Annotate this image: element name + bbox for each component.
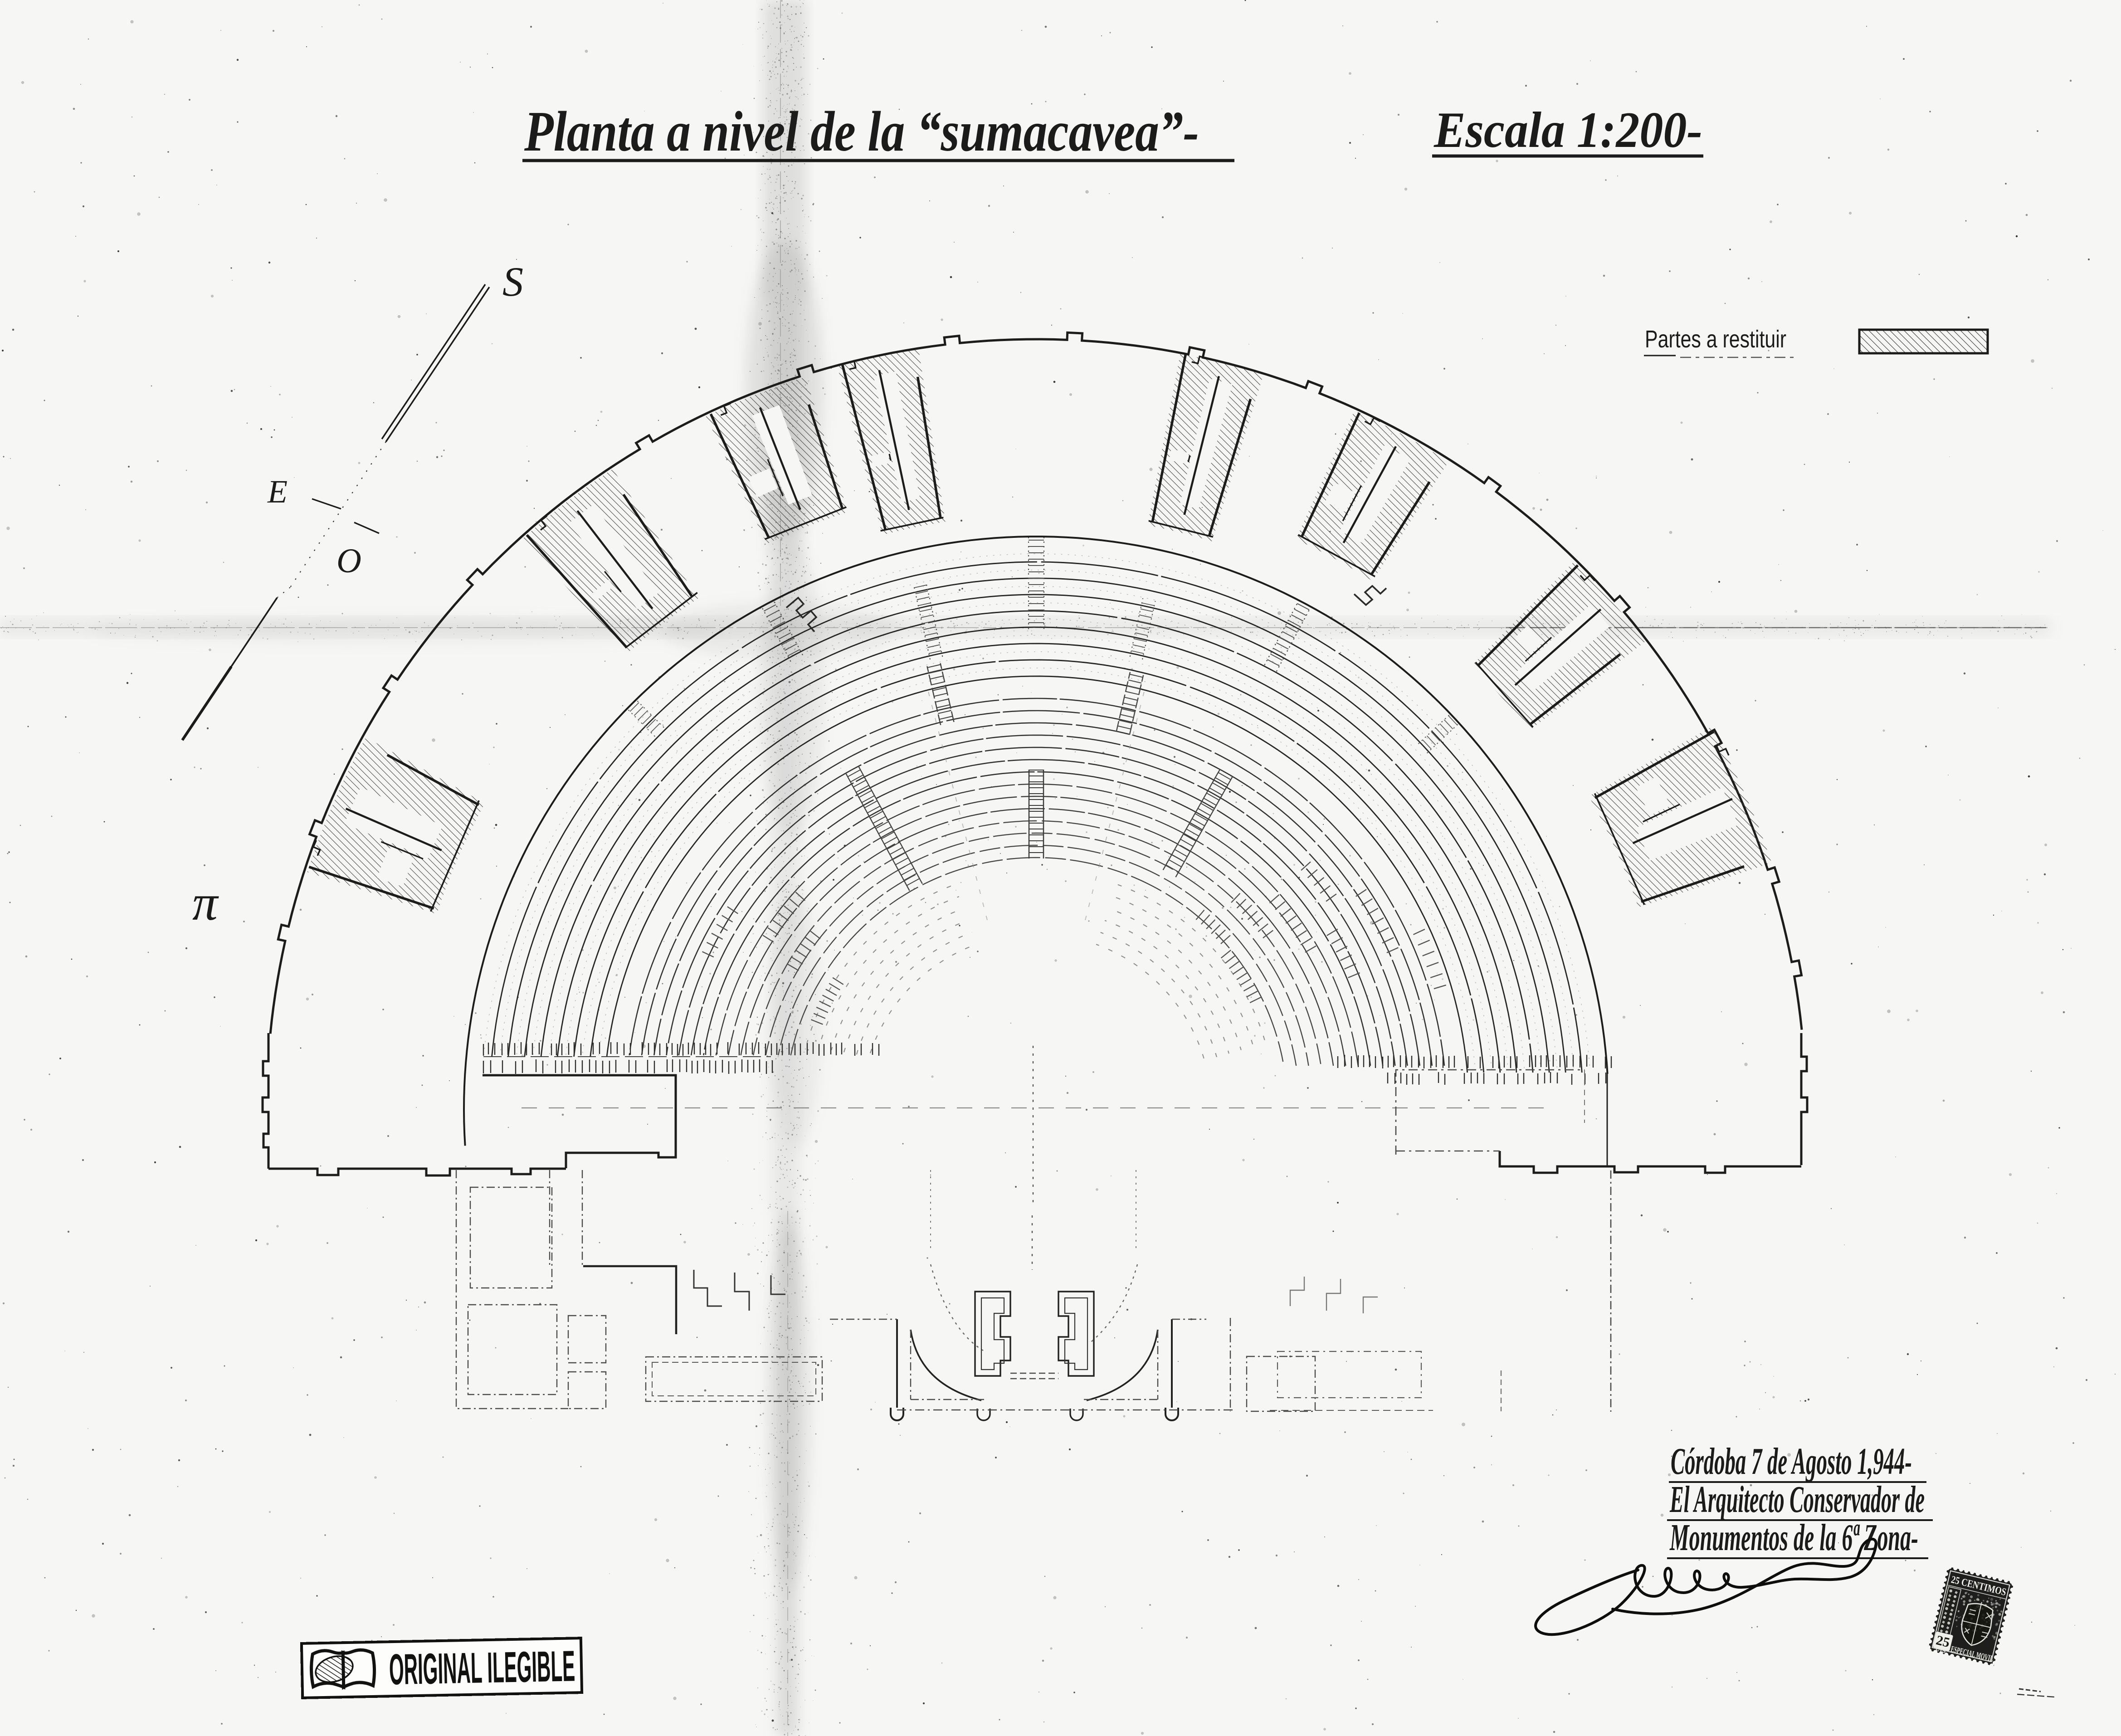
svg-text:Escala 1:200-: Escala 1:200- [1434, 102, 1702, 158]
svg-text:El Arquitecto Conservador de: El Arquitecto Conservador de [1669, 1478, 1925, 1521]
svg-text:ORIGINAL ILEGIBLE: ORIGINAL ILEGIBLE [389, 1642, 575, 1694]
svg-text:π: π [192, 875, 219, 931]
svg-text:O: O [336, 542, 361, 580]
svg-text:Córdoba 7 de Agosto 1,944-: Córdoba 7 de Agosto 1,944- [1671, 1440, 1912, 1482]
svg-text:S: S [502, 258, 523, 305]
svg-text:Monumentos de la 6ª Zona-: Monumentos de la 6ª Zona- [1669, 1517, 1918, 1559]
svg-text:E: E [267, 473, 288, 510]
svg-text:Planta a nivel de la “sumacave: Planta a nivel de la “sumacavea”- [524, 100, 1199, 163]
svg-text:Partes a restituir: Partes a restituir [1645, 326, 1786, 353]
